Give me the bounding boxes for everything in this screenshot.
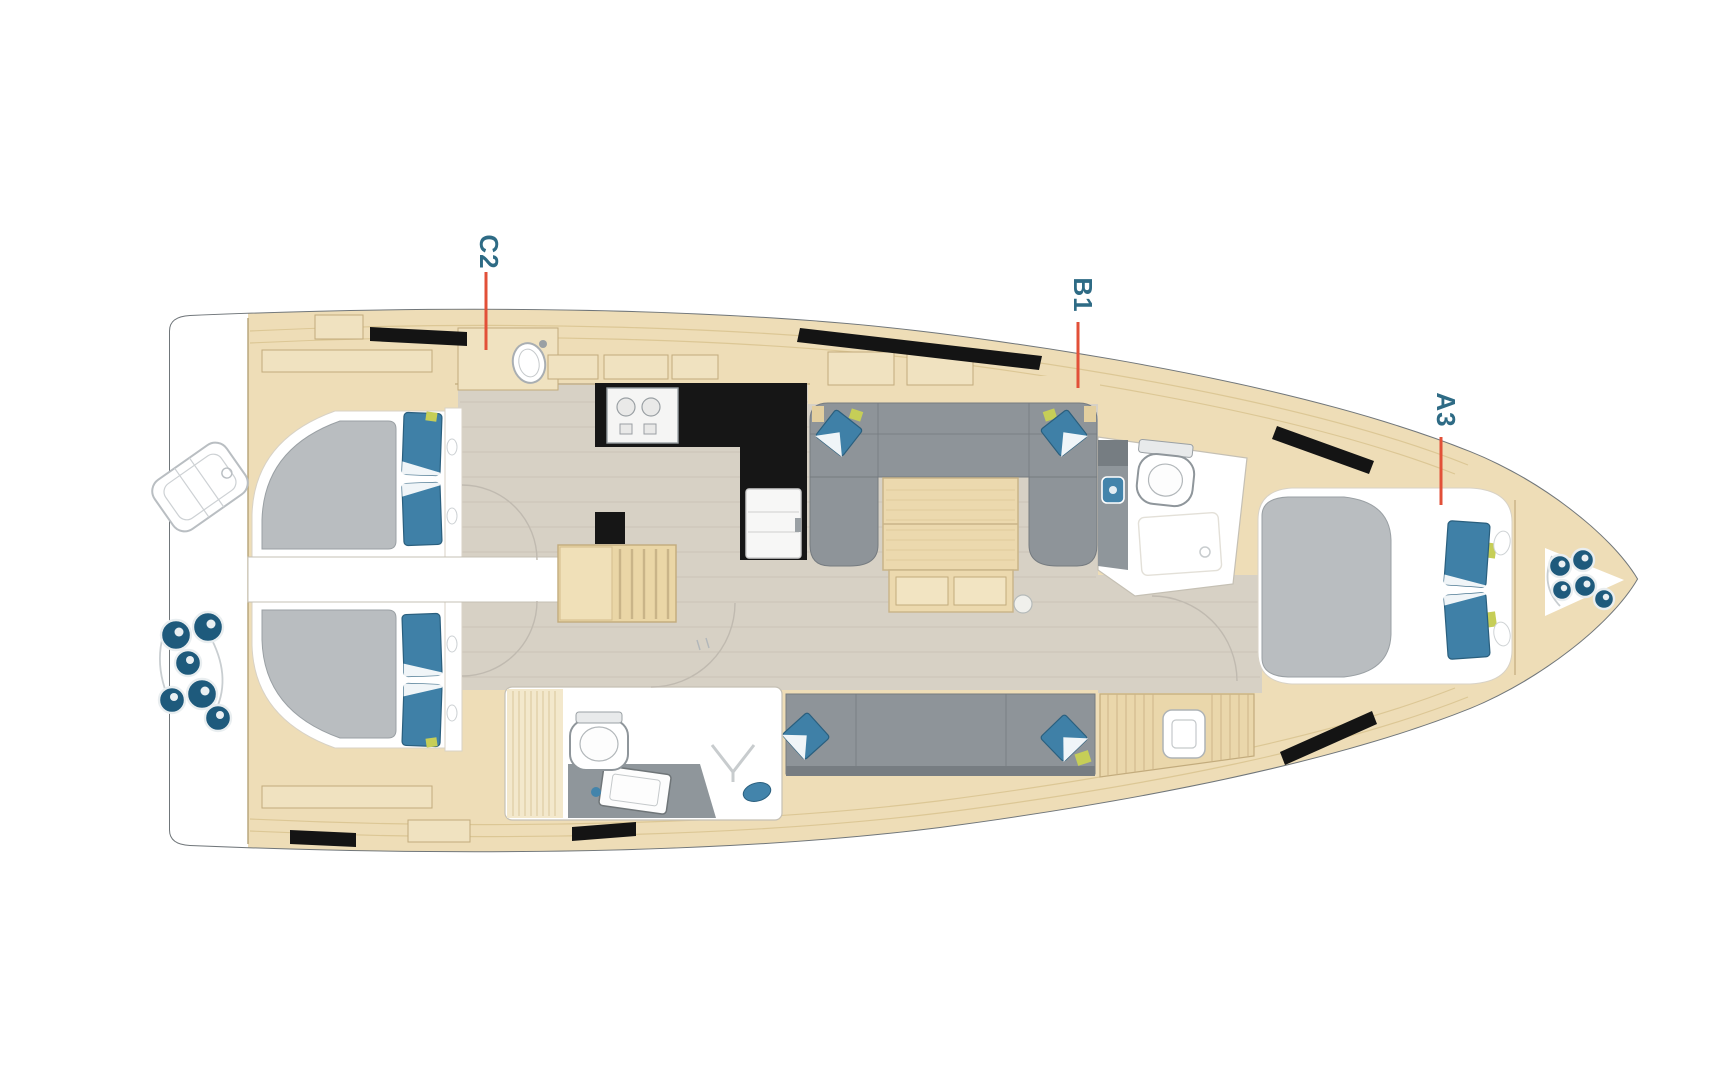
sofa-arm-left [810, 477, 878, 566]
berth-shelf [445, 602, 462, 751]
sofa-arm-right [1029, 477, 1097, 566]
lamp-icon [447, 705, 457, 721]
drawer [604, 355, 668, 379]
lamp-icon [447, 636, 457, 652]
corner-shelf [1084, 406, 1096, 422]
toilet-icon [570, 712, 628, 770]
cabin-shelf [262, 350, 432, 372]
lamp-icon [447, 439, 457, 455]
pillow-icon [1444, 521, 1490, 588]
deck-hatch [315, 315, 363, 339]
forward-head [1098, 437, 1247, 596]
shower-grate [507, 689, 563, 818]
deck-hatch [408, 820, 470, 842]
yacht-floor-plan-page: C2 B1 A3 [0, 0, 1718, 1080]
pillow-icon [402, 613, 442, 676]
lamp-icon [447, 508, 457, 524]
cabinet [1098, 440, 1128, 466]
faucet-icon [539, 340, 547, 348]
faucet-icon [591, 787, 601, 797]
berth-shelf [445, 408, 462, 557]
companionway-stairs [558, 545, 676, 622]
basin-icon [1163, 710, 1205, 758]
corner-shelf [812, 406, 824, 422]
saloon-table [883, 478, 1032, 613]
cabin-label-c2: C2 [474, 234, 504, 269]
pillow-icon [402, 683, 442, 746]
yacht-floor-plan: C2 B1 A3 [0, 0, 1718, 1080]
berth-mattress [1262, 497, 1391, 677]
pillow-icon [1444, 593, 1490, 660]
saloon-shelf [828, 352, 894, 385]
transom-platform [170, 300, 248, 860]
head-sink-icon [599, 765, 672, 814]
galley-island [595, 512, 625, 544]
toilet-icon [1133, 439, 1197, 508]
aft-corridor [248, 557, 562, 602]
aft-head [505, 687, 782, 820]
fridge-icon [746, 489, 801, 558]
drawer [672, 355, 718, 379]
cabin-label-a3: A3 [1431, 392, 1461, 427]
cabin-shelf [262, 786, 432, 808]
cabin-label-b1: B1 [1068, 277, 1098, 312]
pillow-icon [402, 412, 442, 475]
table-leg-mount [1014, 595, 1032, 613]
stove-icon [607, 388, 678, 443]
pillow-icon [402, 482, 442, 545]
saloon-settee [782, 694, 1095, 776]
reading-light-icon [425, 411, 437, 421]
drawer [548, 355, 598, 379]
reading-light-icon [425, 737, 437, 747]
head-sink-icon [1102, 477, 1124, 503]
